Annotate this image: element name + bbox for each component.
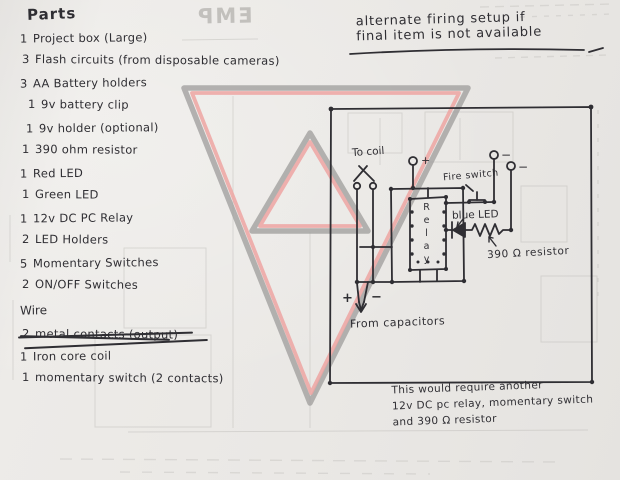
top-note-underline-tail — [589, 48, 603, 52]
list-item: 19v holder (optional) — [26, 119, 320, 135]
capacitor-minus-label: − — [371, 290, 382, 305]
bottom-note: This would require another 12v DC pc rel… — [391, 376, 594, 431]
parts-heading: Parts — [27, 4, 77, 24]
capacitor-plus-label: + — [342, 291, 353, 306]
to-coil-label: To coil — [352, 145, 385, 159]
scanned-notebook-page: EMP — [0, 0, 620, 480]
list-item: 2ON/OFF Switches — [22, 277, 322, 292]
relay-label: Relay — [421, 202, 432, 267]
coil-switch — [354, 166, 376, 189]
list-item: 1390 ohm resistor — [22, 142, 322, 157]
plus-terminal-label: + — [421, 154, 430, 167]
terminal-plus — [409, 157, 417, 188]
resistor-arrow — [489, 237, 496, 246]
top-note-underline — [350, 49, 584, 54]
list-item: 2LED Holders — [22, 232, 322, 247]
wire-subheading: Wire — [20, 298, 320, 317]
capacitor-y-arrow — [356, 282, 368, 312]
top-note: alternate firing setup if final item is … — [356, 10, 543, 45]
list-item: 1Green LED — [22, 187, 322, 202]
blue-led-label: blue LED — [452, 208, 499, 222]
list-item: 1Red LED — [20, 164, 320, 180]
minus-terminal-label: − — [501, 148, 511, 162]
list-item: 1Project box (Large) — [20, 29, 320, 45]
list-item: 112v DC PC Relay — [20, 209, 320, 225]
minus-terminal-label: − — [518, 160, 528, 174]
parts-list: 1Project box (Large) 3Flash circuits (fr… — [20, 31, 320, 394]
list-item: 3Flash circuits (from disposable cameras… — [22, 52, 322, 67]
crossed-out-item: 2metal contacts (output) — [22, 327, 178, 341]
list-item: 5Momentary Switches — [20, 254, 320, 270]
list-item: 19v battery clip — [28, 97, 322, 112]
list-item: 3AA Battery holders — [20, 74, 320, 90]
terminal-minus-2 — [507, 162, 515, 230]
resistor-symbol — [465, 224, 511, 236]
list-item: 1momentary switch (2 contacts) — [22, 370, 322, 385]
list-item: 1Iron core coil — [20, 347, 320, 363]
